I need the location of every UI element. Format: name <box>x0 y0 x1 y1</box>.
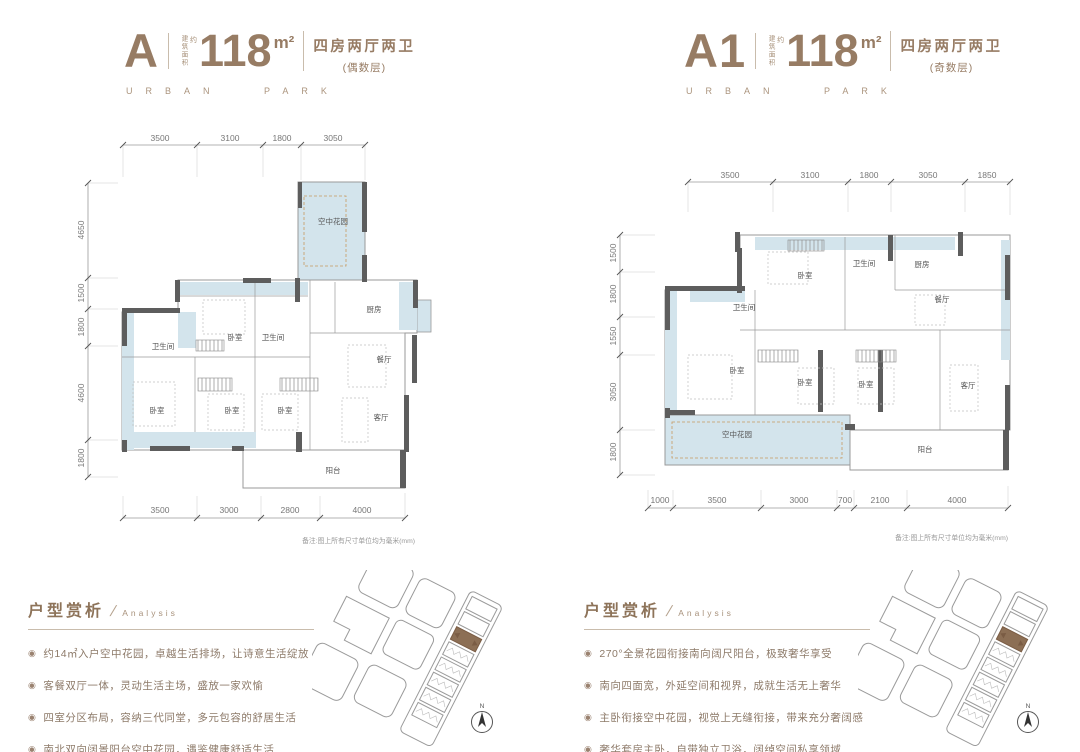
room-label: 厨房 <box>367 304 382 314</box>
dim-label: 4600 <box>76 383 86 402</box>
dim-label: 1800 <box>860 170 879 180</box>
floorplan-a1: 3500 3100 1800 3050 1850 1500 1800 1550 … <box>540 0 1080 560</box>
bullet-item: ◉客餐双厅一体，灵动生活主场，盛放一家欢愉 <box>28 678 338 693</box>
dim-label: 1800 <box>608 284 618 303</box>
bullet-icon: ◉ <box>584 678 592 692</box>
room-label: 卧室 <box>730 365 745 375</box>
room-label: 空中花园 <box>318 216 348 226</box>
dim-label: 1800 <box>76 317 86 336</box>
analysis-subtitle: Analysis <box>678 608 734 618</box>
dimension-note: 备注:图上所有尺寸单位均为毫米(mm) <box>895 533 1008 542</box>
room-label: 阳台 <box>918 444 933 454</box>
analysis-title: 户型赏析 <box>28 597 104 621</box>
dim-label: 3500 <box>151 133 170 143</box>
unit-a1-panel: A1 建筑面积 约 118 m² 四房两厅两卫 (奇数层) URBAN PARK <box>540 0 1080 752</box>
analysis-section-a1: 户型赏析 / Analysis ◉270°全景花园衔接南向阔尺阳台，极致奢华享受… <box>584 597 894 752</box>
dim-label: 1850 <box>978 170 997 180</box>
room-label: 卫生间 <box>262 332 285 342</box>
compass-label: N <box>480 703 485 710</box>
brochure-page: A 建筑面积 约 118 m² 四房两厅两卫 (偶数层) URBAN PARK <box>0 0 1080 752</box>
dim-label: 2100 <box>871 495 890 505</box>
title-underline <box>28 629 314 630</box>
bullet-icon: ◉ <box>28 742 36 752</box>
dimension-note: 备注:图上所有尺寸单位均为毫米(mm) <box>302 536 415 545</box>
dim-label: 3000 <box>790 495 809 505</box>
compass-label: N <box>1026 703 1031 710</box>
unit-outline <box>665 235 1010 470</box>
bullet-item: ◉南向四面宽，外延空间和视界，成就生活无上奢华 <box>584 678 894 693</box>
room-label: 客厅 <box>374 412 389 422</box>
room-label: 餐厅 <box>377 355 392 364</box>
title-underline <box>584 629 870 630</box>
bullet-text: 四室分区布局，容纳三代同堂，多元包容的舒居生活 <box>43 710 296 725</box>
compass: N <box>1018 703 1039 733</box>
dim-label: 3100 <box>221 133 240 143</box>
dim-label: 700 <box>838 495 852 505</box>
bullet-icon: ◉ <box>28 678 36 692</box>
room-label: 卧室 <box>228 332 243 342</box>
bullet-text: 主卧衔接空中花园，视觉上无缝衔接，带来充分奢阔感 <box>599 710 863 725</box>
bullet-item: ◉约14㎡入户空中花园，卓越生活排场，让诗意生活绽放 <box>28 646 338 661</box>
dim-label: 3050 <box>919 170 938 180</box>
room-label: 卧室 <box>798 270 813 280</box>
room-label: 卧室 <box>225 405 240 415</box>
dim-label: 1800 <box>273 133 292 143</box>
site-keymap: N <box>858 570 1050 750</box>
slash-divider: / <box>108 603 118 620</box>
analysis-section-a: 户型赏析 / Analysis ◉约14㎡入户空中花园，卓越生活排场，让诗意生活… <box>28 597 338 752</box>
dim-label: 3100 <box>801 170 820 180</box>
dim-label: 1500 <box>608 243 618 262</box>
dim-label: 3500 <box>151 505 170 515</box>
analysis-title-row: 户型赏析 / Analysis <box>584 597 894 621</box>
dim-label: 3050 <box>324 133 343 143</box>
room-label: 卫生间 <box>733 302 756 312</box>
bullet-text: 南向四面宽，外延空间和视界，成就生活无上奢华 <box>599 678 841 693</box>
dim-label: 1800 <box>608 442 618 461</box>
bullet-text: 南北双向阔景阳台空中花园，遇鉴健康舒适生活 <box>43 742 274 752</box>
dim-label: 1800 <box>76 448 86 467</box>
room-label: 空中花园 <box>722 429 752 439</box>
room-label: 卧室 <box>150 405 165 415</box>
bullet-text: 客餐双厅一体，灵动生活主场，盛放一家欢愉 <box>43 678 263 693</box>
dim-label: 3000 <box>220 505 239 515</box>
dim-label: 2800 <box>281 505 300 515</box>
analysis-bullets: ◉约14㎡入户空中花园，卓越生活排场，让诗意生活绽放 ◉客餐双厅一体，灵动生活主… <box>28 646 338 752</box>
analysis-subtitle: Analysis <box>122 608 178 618</box>
bullet-item: ◉奢华套房主卧，自带独立卫浴，阔绰空间私享领域 <box>584 742 894 752</box>
unit-a-panel: A 建筑面积 约 118 m² 四房两厅两卫 (偶数层) URBAN PARK <box>0 0 540 752</box>
room-label: 阳台 <box>326 465 341 475</box>
bullet-icon: ◉ <box>584 646 592 660</box>
room-label: 卫生间 <box>853 258 876 268</box>
compass: N <box>472 703 493 733</box>
bullet-text: 奢华套房主卧，自带独立卫浴，阔绰空间私享领域 <box>599 742 841 752</box>
dim-label: 3500 <box>708 495 727 505</box>
room-label: 厨房 <box>915 259 930 269</box>
analysis-title: 户型赏析 <box>584 597 660 621</box>
floorplan-a: 3500 3100 1800 3050 4650 1500 1800 4600 … <box>0 0 540 560</box>
site-keymap: N <box>312 570 504 750</box>
room-label: 卫生间 <box>152 341 175 351</box>
bullet-icon: ◉ <box>28 710 36 724</box>
room-label: 餐厅 <box>935 295 950 304</box>
bullet-item: ◉南北双向阔景阳台空中花园，遇鉴健康舒适生活 <box>28 742 338 752</box>
dim-label: 3050 <box>608 382 618 401</box>
dim-label: 4000 <box>353 505 372 515</box>
bullet-item: ◉270°全景花园衔接南向阔尺阳台，极致奢华享受 <box>584 646 894 661</box>
bullet-text: 约14㎡入户空中花园，卓越生活排场，让诗意生活绽放 <box>43 646 309 661</box>
analysis-title-row: 户型赏析 / Analysis <box>28 597 338 621</box>
room-label: 卧室 <box>859 379 874 389</box>
bullet-item: ◉四室分区布局，容纳三代同堂，多元包容的舒居生活 <box>28 710 338 725</box>
analysis-bullets: ◉270°全景花园衔接南向阔尺阳台，极致奢华享受 ◉南向四面宽，外延空间和视界，… <box>584 646 894 752</box>
dim-label: 1550 <box>608 326 618 345</box>
dim-label: 1000 <box>651 495 670 505</box>
room-label: 卧室 <box>278 405 293 415</box>
bullet-icon: ◉ <box>584 742 592 752</box>
room-label: 卧室 <box>798 377 813 387</box>
room-label: 客厅 <box>961 380 976 390</box>
dim-label: 4650 <box>76 220 86 239</box>
bullet-item: ◉主卧衔接空中花园，视觉上无缝衔接，带来充分奢阔感 <box>584 710 894 725</box>
bullet-icon: ◉ <box>28 646 36 660</box>
dim-label: 4000 <box>948 495 967 505</box>
dim-label: 1500 <box>76 283 86 302</box>
slash-divider: / <box>664 603 674 620</box>
bullet-icon: ◉ <box>584 710 592 724</box>
dim-label: 3500 <box>721 170 740 180</box>
bullet-text: 270°全景花园衔接南向阔尺阳台，极致奢华享受 <box>599 646 832 661</box>
